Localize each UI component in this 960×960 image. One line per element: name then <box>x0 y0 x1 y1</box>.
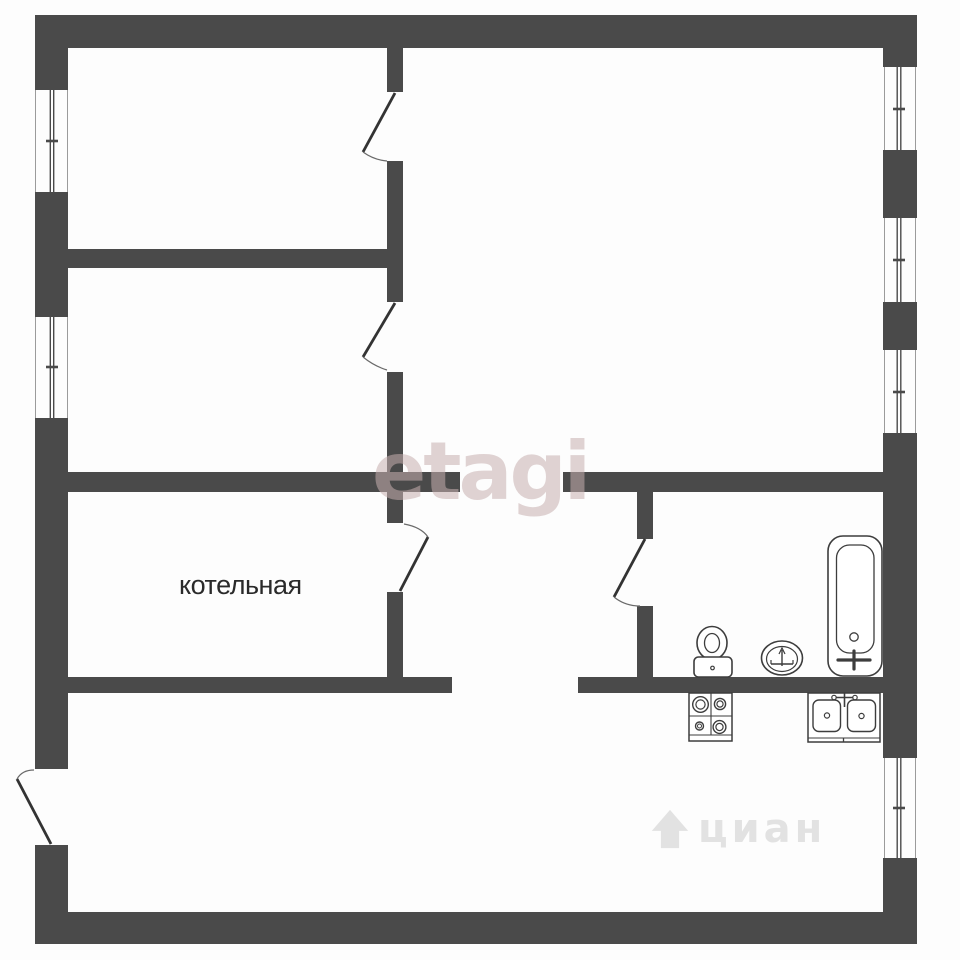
window-icon <box>885 67 916 858</box>
toilet-icon <box>694 627 732 678</box>
window-glazing <box>893 67 905 858</box>
cian-house-icon <box>650 806 690 852</box>
floorplan-canvas: котельная etagi циан <box>0 0 960 960</box>
watermark-cian-text: циан <box>698 809 826 849</box>
room-label-boiler: котельная <box>179 572 302 599</box>
kitchen-sink-icon <box>808 693 880 742</box>
stove-icon <box>689 693 732 741</box>
bathtub-icon <box>828 536 882 676</box>
watermark-etagi: etagi <box>372 432 588 512</box>
window-glazing <box>46 90 58 418</box>
window-icon <box>36 90 68 418</box>
washbasin-icon <box>762 641 803 675</box>
watermark-cian: циан <box>650 806 826 852</box>
